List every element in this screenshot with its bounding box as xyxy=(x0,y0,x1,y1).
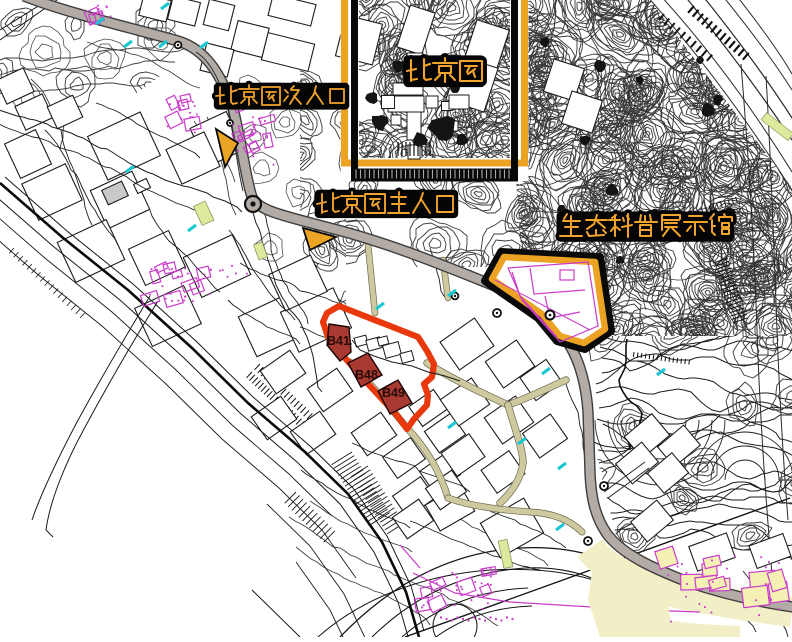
svg-text:B49: B49 xyxy=(382,386,405,400)
svg-text:B41: B41 xyxy=(327,334,350,348)
svg-text:B48: B48 xyxy=(355,368,378,382)
